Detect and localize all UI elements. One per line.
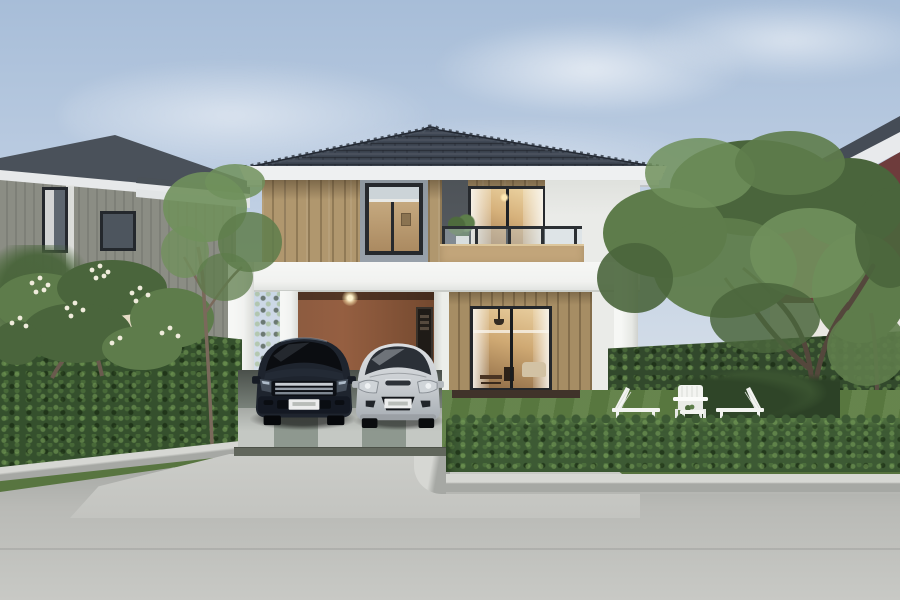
upper-window-glass	[369, 187, 419, 251]
left-house-window	[100, 211, 136, 251]
car-dark-hatchback	[254, 330, 354, 428]
pendant-lamp-cord	[498, 309, 500, 319]
grille	[385, 381, 410, 386]
car-silver-hatchback	[354, 338, 442, 428]
upper-floor	[262, 180, 640, 270]
large-tree-right	[605, 118, 900, 408]
carport-floor-edge	[234, 447, 448, 456]
road-joint	[0, 548, 900, 550]
left-house-window	[42, 187, 68, 253]
dining-table-silhouette	[480, 375, 502, 379]
side-mirror	[252, 376, 261, 384]
low-front-hedge	[446, 418, 900, 472]
roof-fascia	[239, 166, 667, 180]
ceiling-lamp-glow	[500, 193, 509, 202]
living-room-glass-door	[470, 306, 552, 391]
photo-scene	[0, 0, 900, 600]
window-blinds	[420, 315, 429, 331]
window-mullion	[391, 202, 394, 251]
wheel	[264, 416, 281, 426]
pendant-lamp-shade	[494, 319, 504, 325]
sofa-silhouette	[522, 362, 546, 377]
wheel	[362, 418, 378, 428]
carport-ceiling-shadow	[282, 291, 434, 300]
door-mullion	[510, 309, 513, 388]
window-transom	[369, 199, 419, 202]
upper-window	[365, 183, 423, 255]
wheel	[327, 416, 344, 426]
carport-beam	[228, 262, 640, 292]
carport-ceiling-light	[342, 290, 358, 306]
wheel	[419, 418, 435, 428]
interior-picture-frame	[401, 213, 411, 226]
doormat	[452, 390, 580, 398]
curb-right	[446, 474, 900, 494]
chrome-grille	[275, 383, 333, 386]
